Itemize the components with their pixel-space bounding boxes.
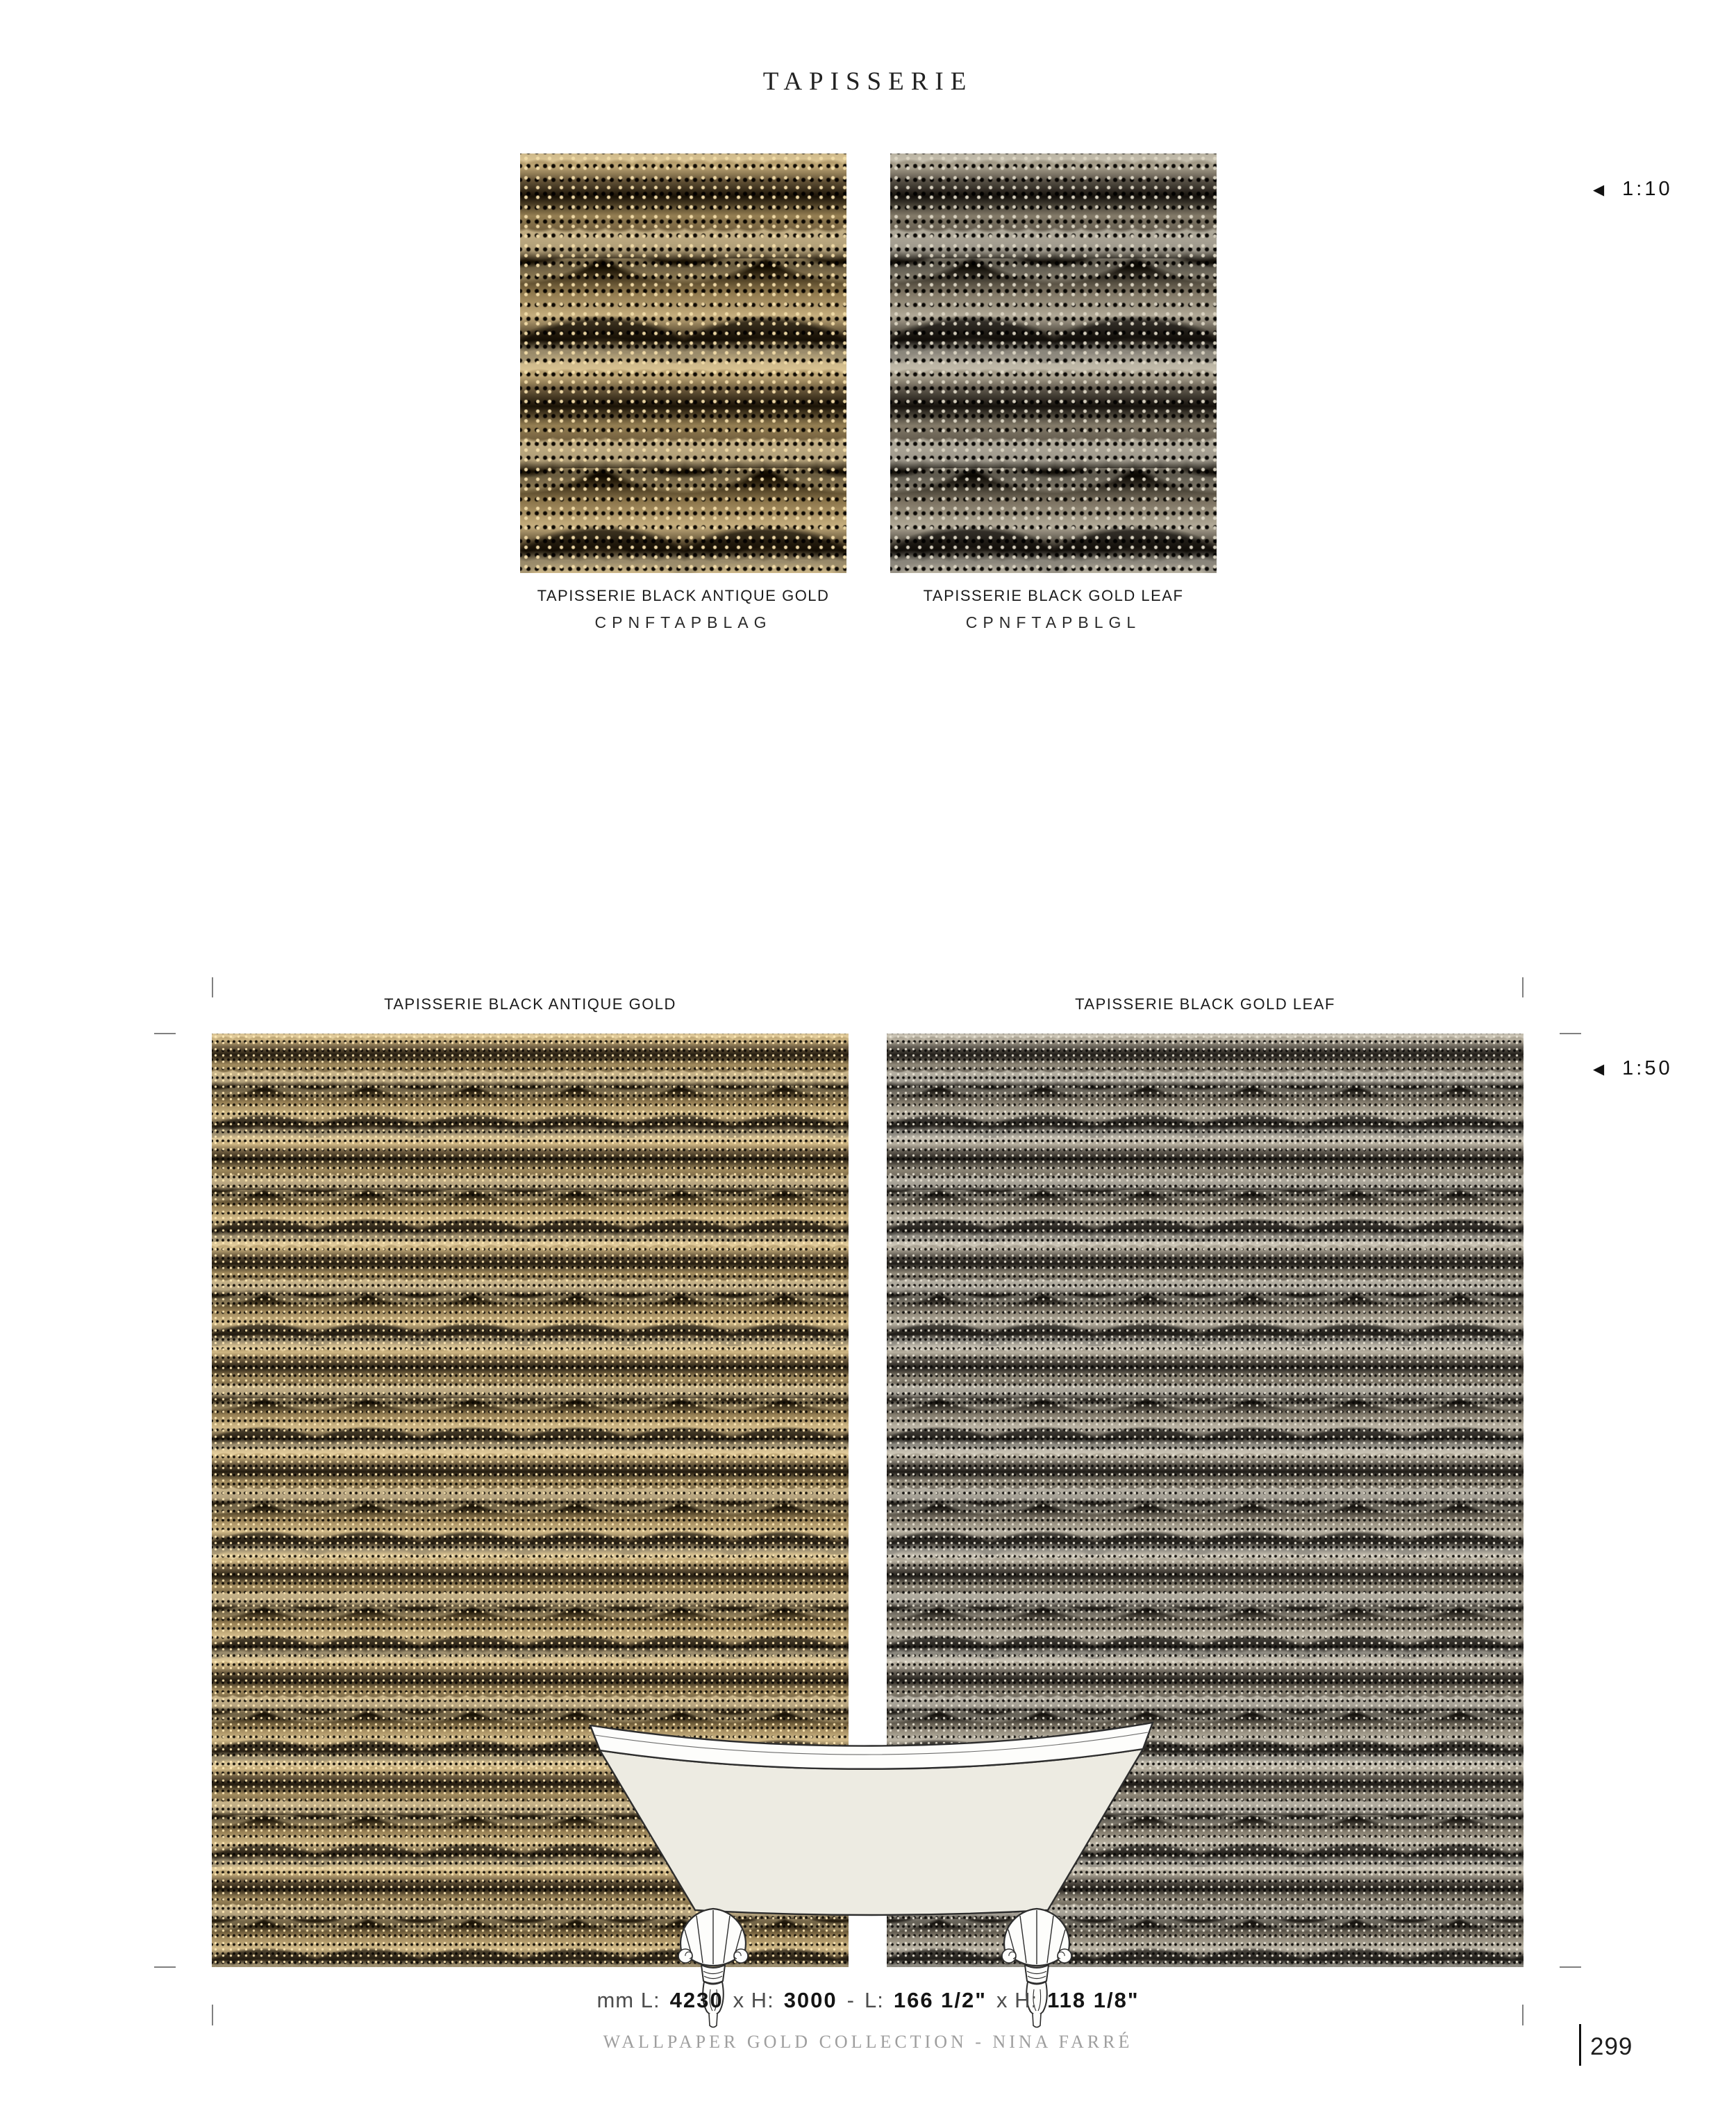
scale-marker-1-50: ◀ 1:50 [1593, 1057, 1673, 1080]
dim-separator: - [847, 1988, 855, 2012]
dimensions-line: mm L:4230x H:3000-L:166 1/2"x H:118 1/8" [0, 1988, 1736, 2013]
swatch-code: CPNFTAPBLGL [890, 613, 1217, 632]
page-number-bar [1579, 2024, 1581, 2066]
crop-mark-top-right-horizontal [1560, 1033, 1581, 1034]
crop-mark-bottom-left-horizontal [154, 1966, 176, 1968]
left-triangle-icon: ◀ [1593, 183, 1604, 197]
dim-length-mm: 4230 [670, 1988, 724, 2012]
page-number: 299 [1590, 2033, 1633, 2061]
page-title: TAPISSERIE [0, 67, 1736, 97]
crop-mark-bottom-right-horizontal [1560, 1966, 1581, 1968]
collection-footer: WALLPAPER GOLD COLLECTION - NINA FARRÉ [0, 2032, 1736, 2053]
dim-unit-label: mm L: [596, 1988, 660, 2012]
crop-mark-top-left-horizontal [154, 1033, 176, 1034]
dim-length-inches: 166 1/2" [894, 1988, 987, 2012]
panel-label-gold-leaf: TAPISSERIE BLACK GOLD LEAF [887, 995, 1524, 1013]
dim-l-label: L: [865, 1988, 884, 2012]
swatch-name: TAPISSERIE BLACK GOLD LEAF [890, 587, 1217, 605]
left-triangle-icon: ◀ [1593, 1062, 1604, 1077]
dim-x-h-label-2: x H: [996, 1988, 1037, 2012]
dim-height-inches: 118 1/8" [1047, 1988, 1139, 2012]
scale-label: 1:10 [1622, 178, 1672, 201]
crop-mark-top-left-vertical [212, 977, 213, 997]
scale-marker-1-10: ◀ 1:10 [1593, 178, 1673, 201]
swatch-image-antique-gold [520, 154, 846, 573]
crop-mark-top-right-vertical [1522, 977, 1524, 997]
scale-label: 1:50 [1622, 1057, 1672, 1080]
swatch-black-antique-gold: TAPISSERIE BLACK ANTIQUE GOLD CPNFTAPBLA… [520, 154, 846, 632]
dim-height-mm: 3000 [784, 1988, 837, 2012]
tub-body [600, 1749, 1143, 1915]
swatch-code: CPNFTAPBLAG [520, 613, 846, 632]
swatch-name: TAPISSERIE BLACK ANTIQUE GOLD [520, 587, 846, 605]
dim-x-h-label: x H: [733, 1988, 774, 2012]
swatch-image-gold-leaf [890, 154, 1217, 573]
panel-label-antique-gold: TAPISSERIE BLACK ANTIQUE GOLD [212, 995, 849, 1013]
catalog-page: { "page": { "title": "TAPISSERIE", "foot… [0, 0, 1736, 2122]
swatch-black-gold-leaf: TAPISSERIE BLACK GOLD LEAF CPNFTAPBLGL [890, 154, 1217, 632]
